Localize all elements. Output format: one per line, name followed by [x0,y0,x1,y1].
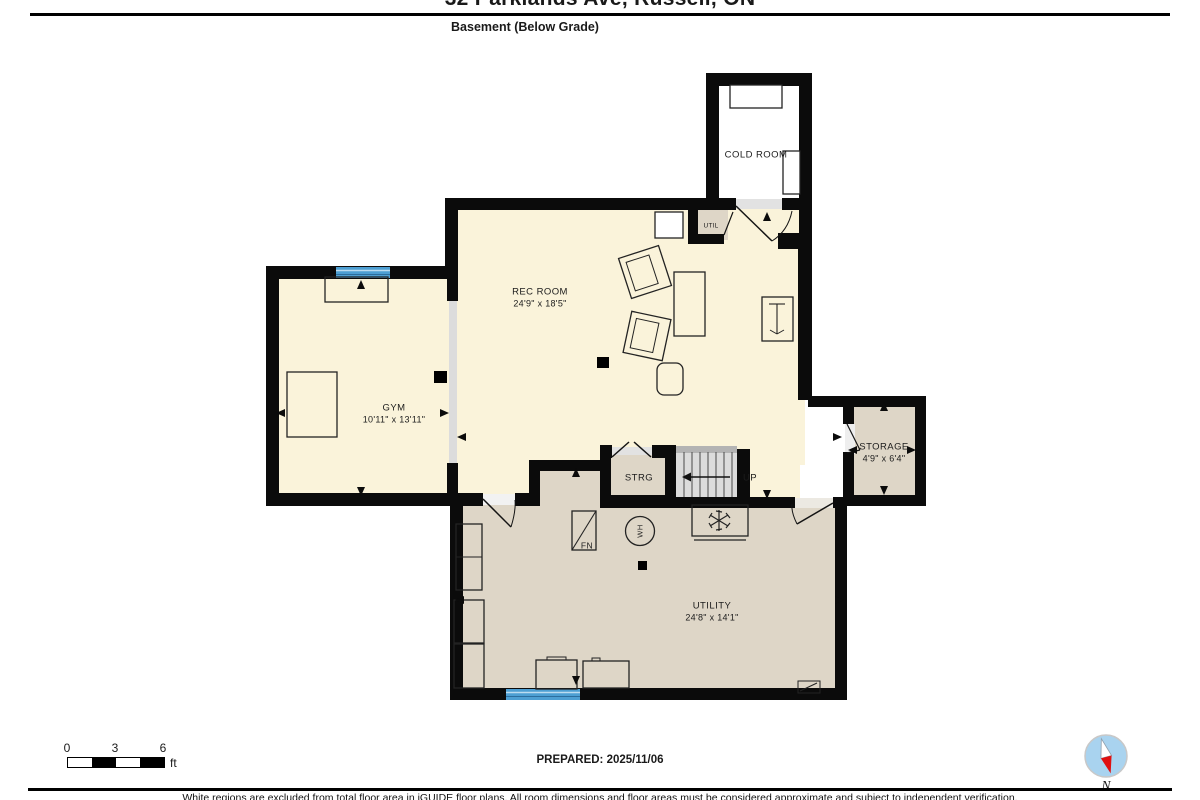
scale-tick-0: 0 [64,741,71,755]
gym-label: GYM 10'11" x 13'11" [363,403,426,426]
utility-label: UTILITY 24'8" x 14'1" [685,601,738,624]
room-floors [275,80,920,695]
stairs-up-label: UP [743,472,757,484]
disclaimer-text: White regions are excluded from total fl… [0,792,1200,800]
scale-tick-6: 6 [160,741,167,755]
util-closet-label: UTIL [704,220,719,232]
cold-room-shelf [730,85,782,108]
storage-label: STORAGE 4'9" x 6'4" [859,442,908,465]
cold-room-label: COLD ROOM [725,149,788,161]
staircase [676,446,737,497]
compass-icon [1083,733,1129,779]
floor-plan [0,0,1200,800]
footer-divider [28,788,1172,791]
rec-room-cabinet [655,212,683,238]
strg-label: STRG [625,472,653,484]
rec-room-label: REC ROOM 24'9" x 18'5" [512,287,568,310]
floorplan-page: 32 Parklands Ave, Russell, ON Basement (… [0,0,1200,800]
scale-tick-3: 3 [112,741,119,755]
furnace-label: FN [581,540,593,552]
prepared-date: PREPARED: 2025/11/06 [0,754,1200,766]
water-heater-label: WH [634,524,646,538]
